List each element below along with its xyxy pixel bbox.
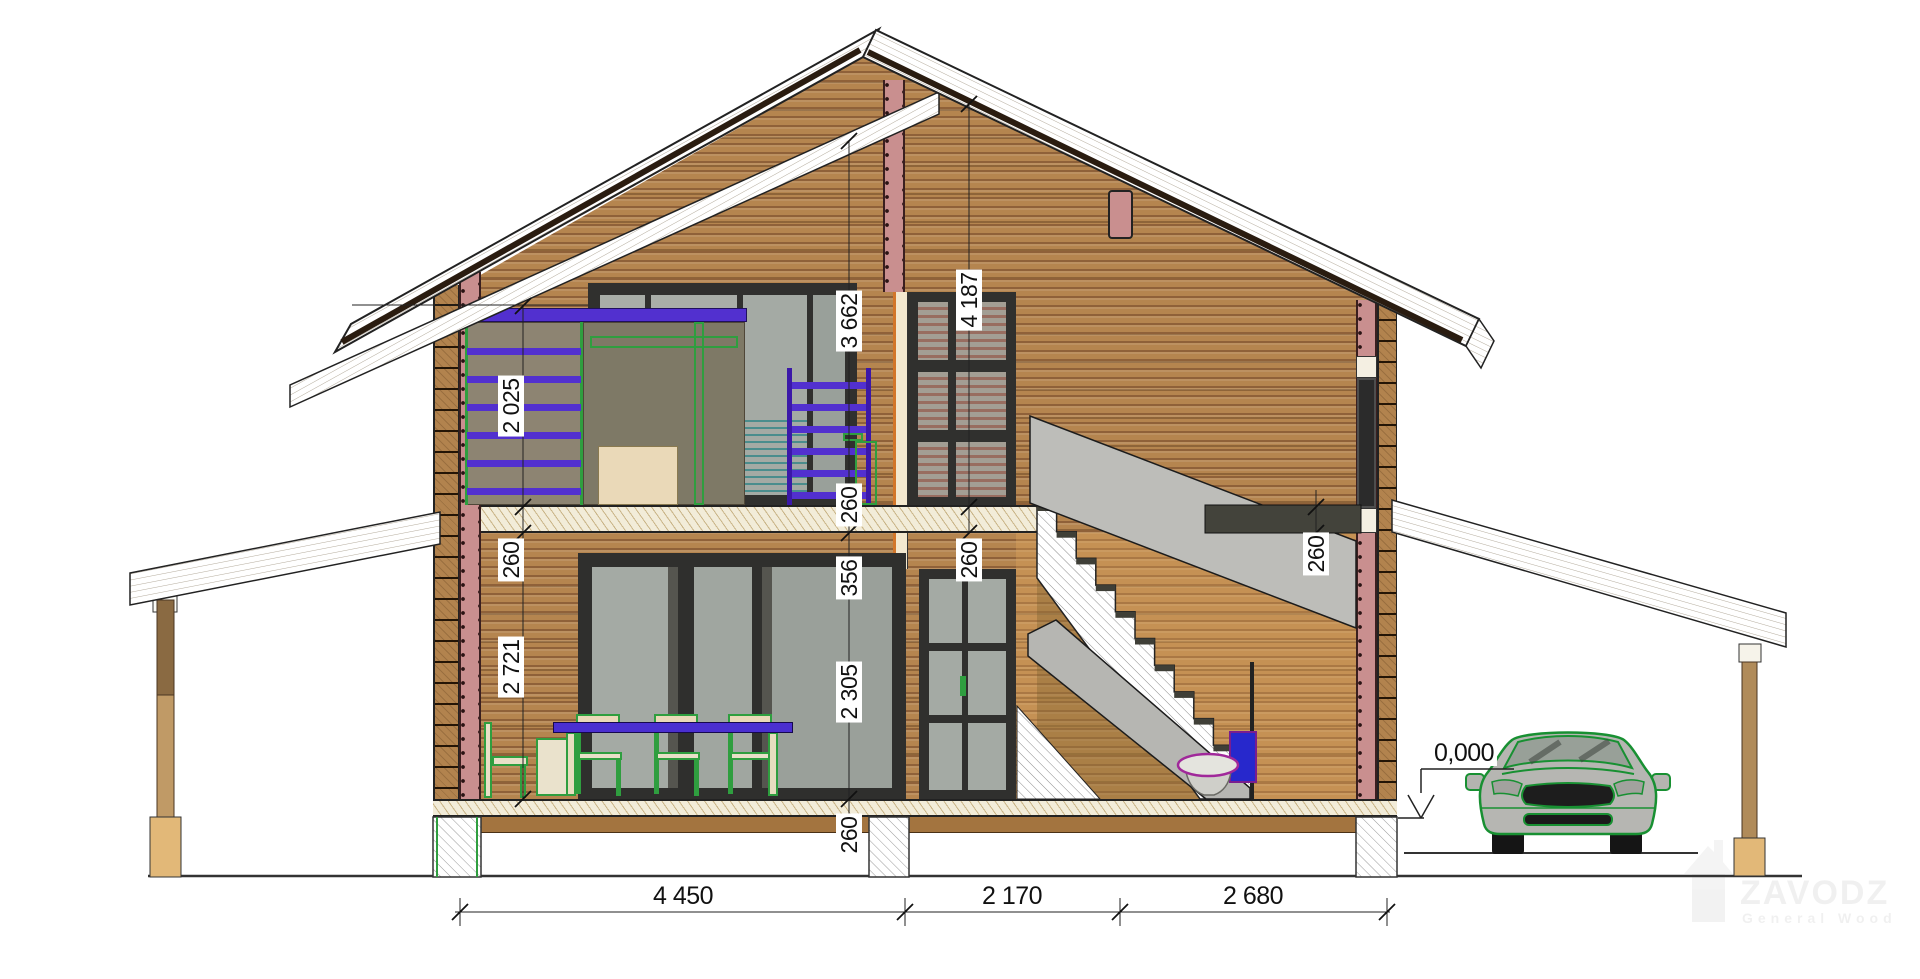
dim-label-2170: 2 170 [979,883,1045,909]
dim-label-2680: 2 680 [1220,883,1286,909]
watermark-title: ZAVODZ [1740,874,1889,913]
level-label: 0,000 [1431,740,1497,766]
dim-label-2305: 2 305 [836,661,862,722]
dim-label-260-door: 260 [956,539,982,582]
watermark-subtitle: General Wood [1742,910,1897,926]
dim-label-260-stairs: 260 [1303,533,1329,576]
dim-label-4187: 4 187 [956,269,982,330]
dim-label-260-base: 260 [836,814,862,857]
dim-label-3662: 3 662 [836,290,862,351]
dim-label-2721: 2 721 [498,636,524,697]
dim-label-356: 356 [836,557,862,600]
dim-label-2025: 2 025 [498,375,524,436]
dim-label-260-left: 260 [498,539,524,582]
dim-label-4450: 4 450 [650,883,716,909]
dim-label-260-mid: 260 [836,484,862,527]
house-section-drawing: 2 025 260 2 721 3 662 260 356 2 305 260 … [0,0,1920,979]
